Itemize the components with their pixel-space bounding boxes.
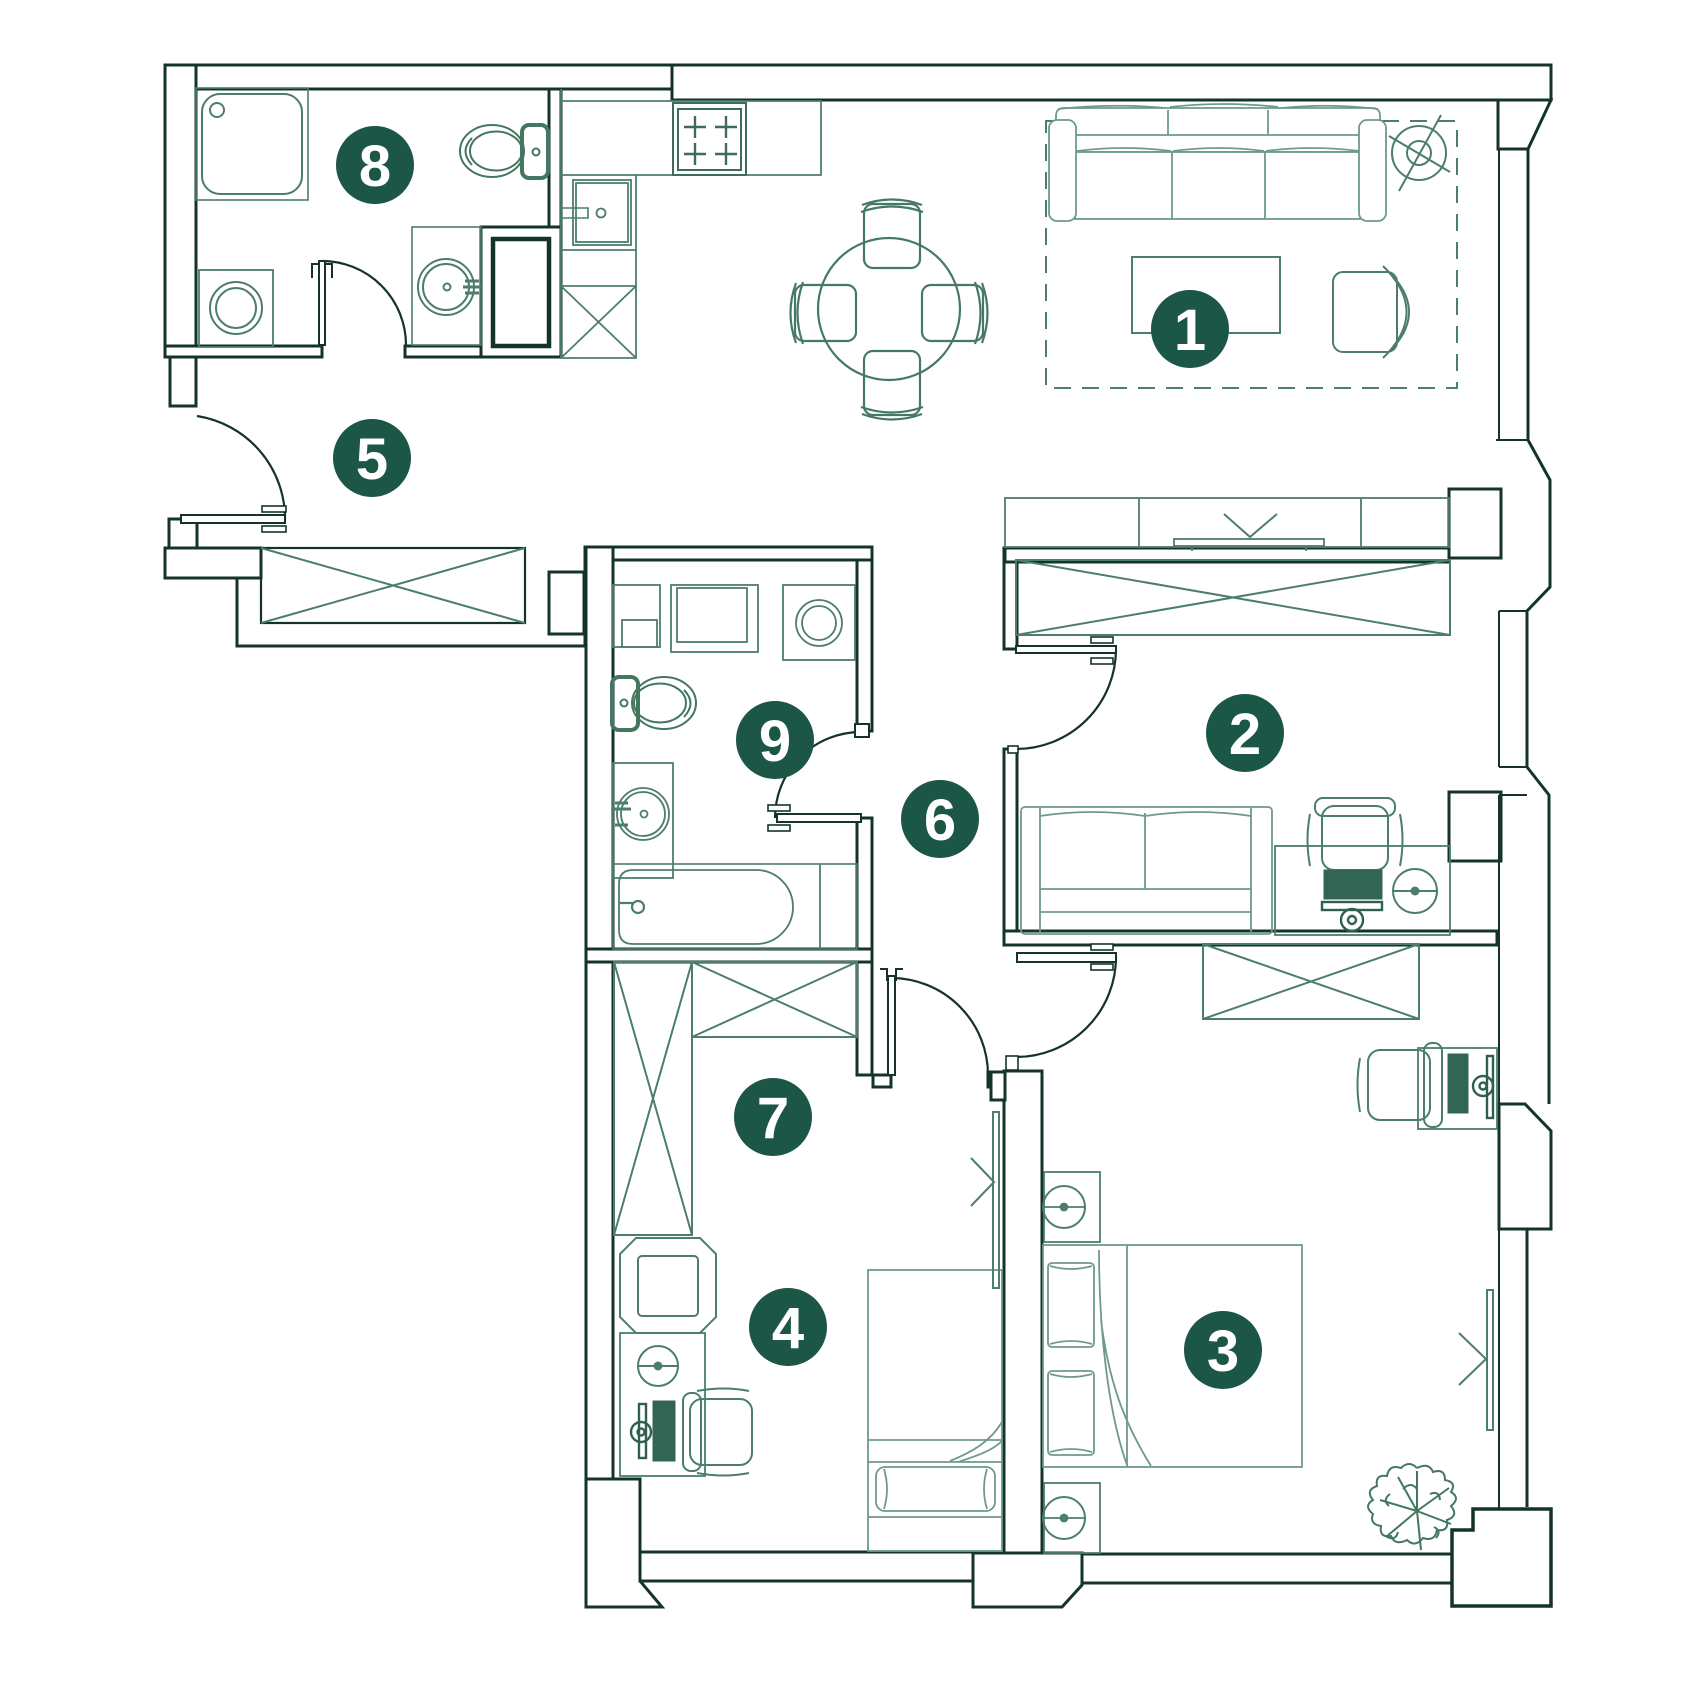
svg-text:5: 5	[356, 427, 388, 492]
svg-text:2: 2	[1229, 702, 1261, 767]
svg-text:7: 7	[757, 1086, 789, 1151]
svg-text:9: 9	[759, 709, 791, 774]
svg-text:4: 4	[772, 1296, 804, 1361]
svg-text:1: 1	[1174, 298, 1206, 363]
svg-text:8: 8	[359, 134, 391, 199]
svg-text:6: 6	[924, 788, 956, 853]
svg-text:3: 3	[1207, 1319, 1239, 1384]
